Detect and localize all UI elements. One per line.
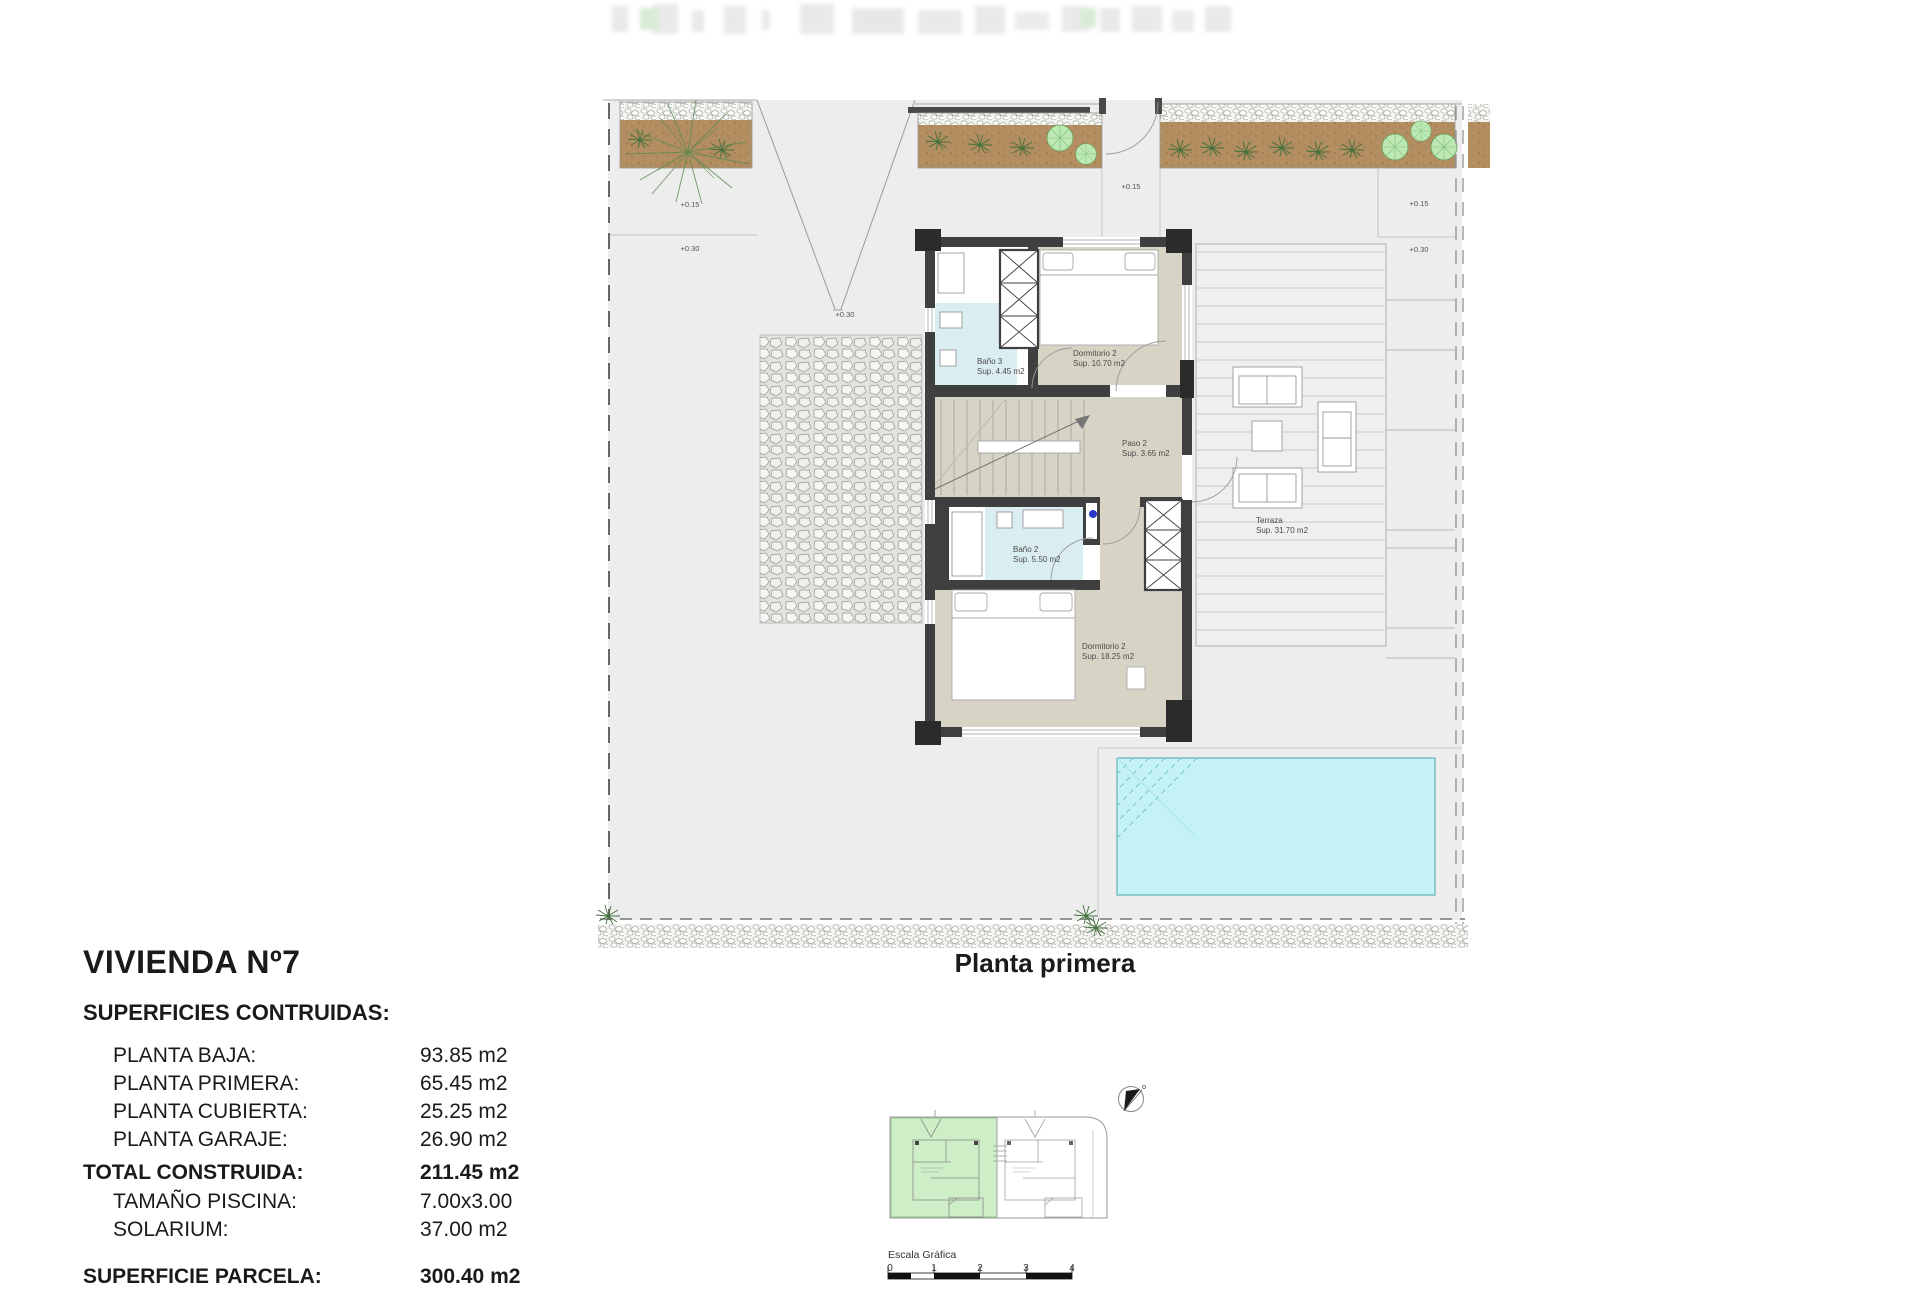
level-label: +0.15 [681,200,700,209]
graphic-scale: Escala Gráfica 0 1 2 3 4 [887,1249,1075,1279]
row-label: TOTAL CONSTRUIDA: [83,1158,420,1188]
room-label: Baño 3 [977,357,1003,366]
tree-icon [1382,134,1408,160]
planter-right [1160,104,1457,168]
table-row: PLANTA BAJA: 93.85 m2 [83,1042,523,1070]
level-label: +0.15 [1122,182,1141,191]
row-value: 300.40 m2 [420,1262,520,1292]
stone-patio [760,335,922,623]
row-value: 25.25 m2 [420,1098,508,1126]
level-label: +0.30 [836,310,855,319]
surfaces-subtitle: SUPERFICIES CONTRUIDAS: [83,1000,390,1026]
level-label: +0.30 [1410,245,1429,254]
wardrobe [1000,250,1038,348]
room-label: Terraza [1256,516,1283,525]
level-label: +0.15 [1410,199,1429,208]
row-label: SOLARIUM: [83,1216,420,1244]
fixture-marker [1089,510,1097,518]
row-value: 7.00x3.00 [420,1188,512,1216]
neighbor-shapes [612,4,1231,34]
building [915,229,1237,745]
row-label: TAMAÑO PISCINA: [83,1188,420,1216]
bed-double [1040,250,1158,345]
room-label: Dormitorio 2 [1073,349,1117,358]
row-label: PLANTA CUBIERTA: [83,1098,420,1126]
room-area-label: Sup. 10.70 m2 [1073,359,1126,368]
row-value: 65.45 m2 [420,1070,508,1098]
room-label: Paso 2 [1122,439,1147,448]
table-row-parcel: SUPERFICIE PARCELA: 300.40 m2 [83,1262,523,1292]
room-area-label: Sup. 4.45 m2 [977,367,1025,376]
key-plan-highlighted-unit [891,1118,997,1217]
outdoor-sofa [1233,367,1302,407]
table-row: PLANTA PRIMERA: 65.45 m2 [83,1070,523,1098]
surfaces-table: PLANTA BAJA: 93.85 m2 PLANTA PRIMERA: 65… [83,1042,523,1292]
bed-double [952,590,1075,700]
row-label: SUPERFICIE PARCELA: [83,1262,420,1292]
scale-label: Escala Gráfica [888,1249,956,1261]
lounge-chair [1318,402,1356,472]
plan-caption: Planta primera [900,948,1190,979]
row-label: PLANTA PRIMERA: [83,1070,420,1098]
room-area-label: Sup. 18.25 m2 [1082,652,1135,661]
row-value: 211.45 m2 [420,1158,519,1188]
row-value: 93.85 m2 [420,1042,508,1070]
row-label: PLANTA GARAJE: [83,1126,420,1154]
tree-icon [1047,125,1073,151]
row-value: 37.00 m2 [420,1216,508,1244]
room-label: Dormitorio 2 [1082,642,1126,651]
key-plan [890,1110,1107,1218]
scale-bar [888,1266,1072,1279]
level-label: +0.30 [681,244,700,253]
table-row: SOLARIUM: 37.00 m2 [83,1216,523,1244]
nightstand [1127,667,1145,689]
row-value: 26.90 m2 [420,1126,508,1154]
planter-middle [908,107,1102,168]
dwelling-title: VIVIENDA Nº7 [83,944,300,981]
terrace [1196,244,1386,646]
table-row-total: TOTAL CONSTRUIDA: 211.45 m2 [83,1158,523,1188]
table-row: PLANTA GARAJE: 26.90 m2 [83,1126,523,1154]
table-row: TAMAÑO PISCINA: 7.00x3.00 [83,1188,523,1216]
room-area-label: Sup. 3.65 m2 [1122,449,1170,458]
row-label: PLANTA BAJA: [83,1042,420,1070]
drawing-sheet: { "plan": { "caption": "Planta primera",… [0,0,1920,1280]
table-row: PLANTA CUBIERTA: 25.25 m2 [83,1098,523,1126]
planter-outside [1468,104,1490,168]
coffee-table [1252,421,1282,451]
boundary-gravel [598,924,1468,948]
room-label: Baño 2 [1013,545,1039,554]
north-arrow-icon [1119,1086,1146,1112]
room-area-label: Sup. 5.50 m2 [1013,555,1061,564]
room-area-label: Sup. 31.70 m2 [1256,526,1309,535]
wardrobe [1145,500,1182,590]
outdoor-sofa [1233,468,1302,508]
swimming-pool [1117,758,1435,895]
